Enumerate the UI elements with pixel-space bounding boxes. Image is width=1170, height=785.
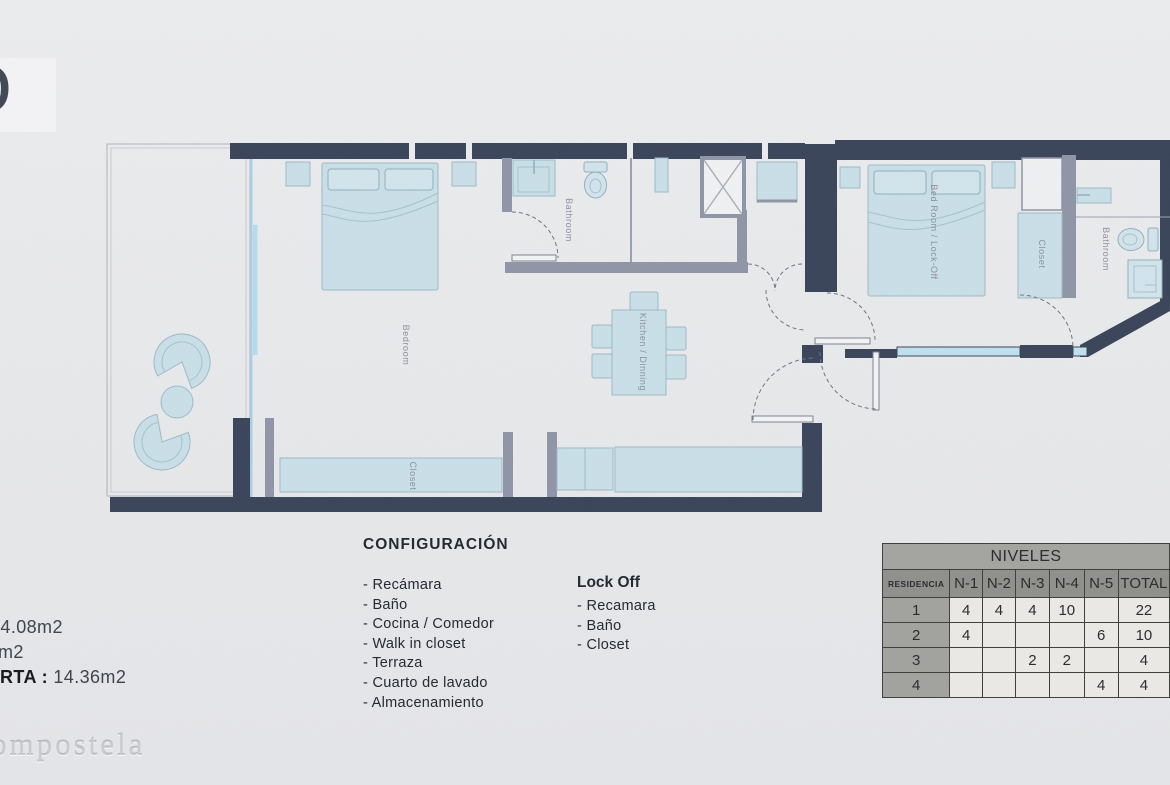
terrace <box>107 144 250 496</box>
table-cell: 4 <box>1015 598 1049 623</box>
door-arc <box>766 290 806 330</box>
table-cell: 2 <box>1015 648 1049 673</box>
kitchen-label: Kitchen / Dinning <box>638 313 648 391</box>
door-arc <box>753 358 815 420</box>
glass-wall <box>250 159 258 497</box>
pillow <box>874 171 926 194</box>
column-header: TOTAL <box>1118 570 1169 598</box>
table-cell <box>1084 598 1118 623</box>
lockoff-bathroom-label: Bathroom <box>1101 227 1111 271</box>
table-cell <box>983 623 1016 648</box>
divider-wall <box>805 156 837 292</box>
laundry-appliance <box>655 158 668 192</box>
config-item: - Walk in closet <box>363 635 509 655</box>
table-row: 1 4 4 4 10 22 <box>883 598 1170 623</box>
column-header: N-3 <box>1015 570 1049 598</box>
table-cell <box>983 673 1016 698</box>
main-bedroom <box>286 162 476 290</box>
dining-chair <box>666 327 686 350</box>
laundry-counter <box>557 448 613 490</box>
door-leaf <box>752 416 813 422</box>
table-cell <box>1015 623 1049 648</box>
table-title: NIVELES <box>883 544 1170 570</box>
table-cell <box>950 648 983 673</box>
config-item: - Cocina / Comedor <box>363 615 509 635</box>
table-cell: 10 <box>1050 598 1084 623</box>
table-cell <box>983 648 1016 673</box>
config-item: - Cuarto de lavado <box>363 674 509 694</box>
table-cell: 10 <box>1118 623 1169 648</box>
table-cell <box>1084 648 1118 673</box>
table-cell: 4 <box>950 623 983 648</box>
dining-chair <box>592 354 612 378</box>
lockoff-section: Lock Off - Recamara - Baño - Closet <box>577 574 656 656</box>
area-line-3-value: 14.36m2 <box>53 667 126 687</box>
area-line-3-label: RTA : <box>0 667 48 687</box>
page: Bedroom Bathroom Closet Kitchen / Dinnin… <box>0 0 1170 785</box>
door-arc <box>512 212 558 258</box>
table-cell: 2 <box>1050 648 1084 673</box>
door-arc <box>1020 295 1073 348</box>
table-header-row: RESIDENCIA N-1 N-2 N-3 N-4 N-5 TOTAL <box>883 570 1170 598</box>
table-cell: 3 <box>883 648 950 673</box>
toilet <box>584 162 607 198</box>
column-header: N-5 <box>1084 570 1118 598</box>
closet-label: Closet <box>408 461 418 490</box>
lockoff-shelf <box>1022 158 1062 210</box>
table-row: 3 2 2 4 <box>883 648 1170 673</box>
config-item: - Recámara <box>363 576 509 596</box>
closet-counter <box>280 458 502 492</box>
lockoff-closet-label: Closet <box>1037 239 1047 268</box>
table-cell: 6 <box>1084 623 1118 648</box>
lockoff-bathroom <box>1077 188 1162 298</box>
diagonal-wall <box>1080 299 1170 357</box>
area-line-1: 34.08m2 <box>0 615 126 640</box>
bedroom-label: Bedroom <box>401 325 411 366</box>
table-cell: 4 <box>1118 673 1169 698</box>
logo-letter: D <box>0 52 11 126</box>
storage-box <box>757 162 797 202</box>
watermark: ompostela <box>0 727 145 763</box>
config-item: - Terraza <box>363 654 509 674</box>
lockoff-closet <box>1018 158 1062 298</box>
table-cell: 4 <box>1118 648 1169 673</box>
door-arc <box>827 293 875 341</box>
nightstand <box>286 162 310 186</box>
table-row: 2 4 6 10 <box>883 623 1170 648</box>
table-cell: 4 <box>983 598 1016 623</box>
config-section: CONFIGURACIÓN - Recámara - Baño - Cocina… <box>363 536 509 713</box>
doors <box>512 212 1073 422</box>
lockoff-sink <box>1077 188 1111 203</box>
storage-counter <box>615 447 802 492</box>
coffee-table <box>161 386 193 418</box>
door-arc <box>748 264 775 291</box>
dining-chair <box>630 292 658 310</box>
config-item: - Almacenamiento <box>363 694 509 714</box>
config-heading: CONFIGURACIÓN <box>363 536 509 554</box>
nightstand <box>452 162 476 186</box>
nightstand <box>840 167 860 188</box>
column-header: N-4 <box>1050 570 1084 598</box>
table-row: 4 4 4 <box>883 673 1170 698</box>
lockoff-bedroom-label: Bed Room / Lock-Off <box>929 184 939 279</box>
door-leaf <box>815 338 870 344</box>
table-cell: 4 <box>1084 673 1118 698</box>
pillow <box>385 169 433 190</box>
dining-chair <box>592 325 612 348</box>
table-cell: 22 <box>1118 598 1169 623</box>
table-cell: 4 <box>950 598 983 623</box>
lockoff-bedroom <box>840 162 1015 296</box>
door-arc <box>775 264 802 291</box>
nightstand <box>992 162 1015 188</box>
lockoff-item: - Recamara <box>577 597 656 617</box>
area-line-3: RTA : 14.36m2 <box>0 665 126 690</box>
door-arc <box>820 352 877 409</box>
lockoff-heading: Lock Off <box>577 574 656 592</box>
bottom-wall <box>110 497 822 512</box>
top-wall <box>835 140 1170 160</box>
door-leaf <box>873 352 879 410</box>
table-cell <box>1015 673 1049 698</box>
table-cell: 2 <box>883 623 950 648</box>
table-cell: 1 <box>883 598 950 623</box>
config-item: - Baño <box>363 596 509 616</box>
table-cell <box>1050 623 1084 648</box>
table-cell <box>1050 673 1084 698</box>
column-header: RESIDENCIA <box>883 570 950 598</box>
area-line-2: m2 <box>0 640 126 665</box>
elevator-shaft <box>702 158 744 216</box>
bathroom-label: Bathroom <box>564 198 574 242</box>
column-header: N-2 <box>983 570 1016 598</box>
table-cell <box>950 673 983 698</box>
niveles-table: NIVELES RESIDENCIA N-1 N-2 N-3 N-4 N-5 T… <box>882 543 1170 698</box>
lockoff-item: - Baño <box>577 617 656 637</box>
area-text: 34.08m2 m2 RTA : 14.36m2 <box>0 615 126 690</box>
bottom-counters <box>280 447 802 492</box>
lockoff-toilet <box>1118 228 1158 251</box>
table-cell: 4 <box>883 673 950 698</box>
door-leaf <box>512 255 556 261</box>
column-header: N-1 <box>950 570 983 598</box>
pillow <box>328 169 379 190</box>
shower <box>1128 260 1162 298</box>
main-bathroom <box>513 160 607 198</box>
lockoff-item: - Closet <box>577 636 656 656</box>
window-band <box>845 345 1087 358</box>
dining-chair <box>666 355 686 379</box>
